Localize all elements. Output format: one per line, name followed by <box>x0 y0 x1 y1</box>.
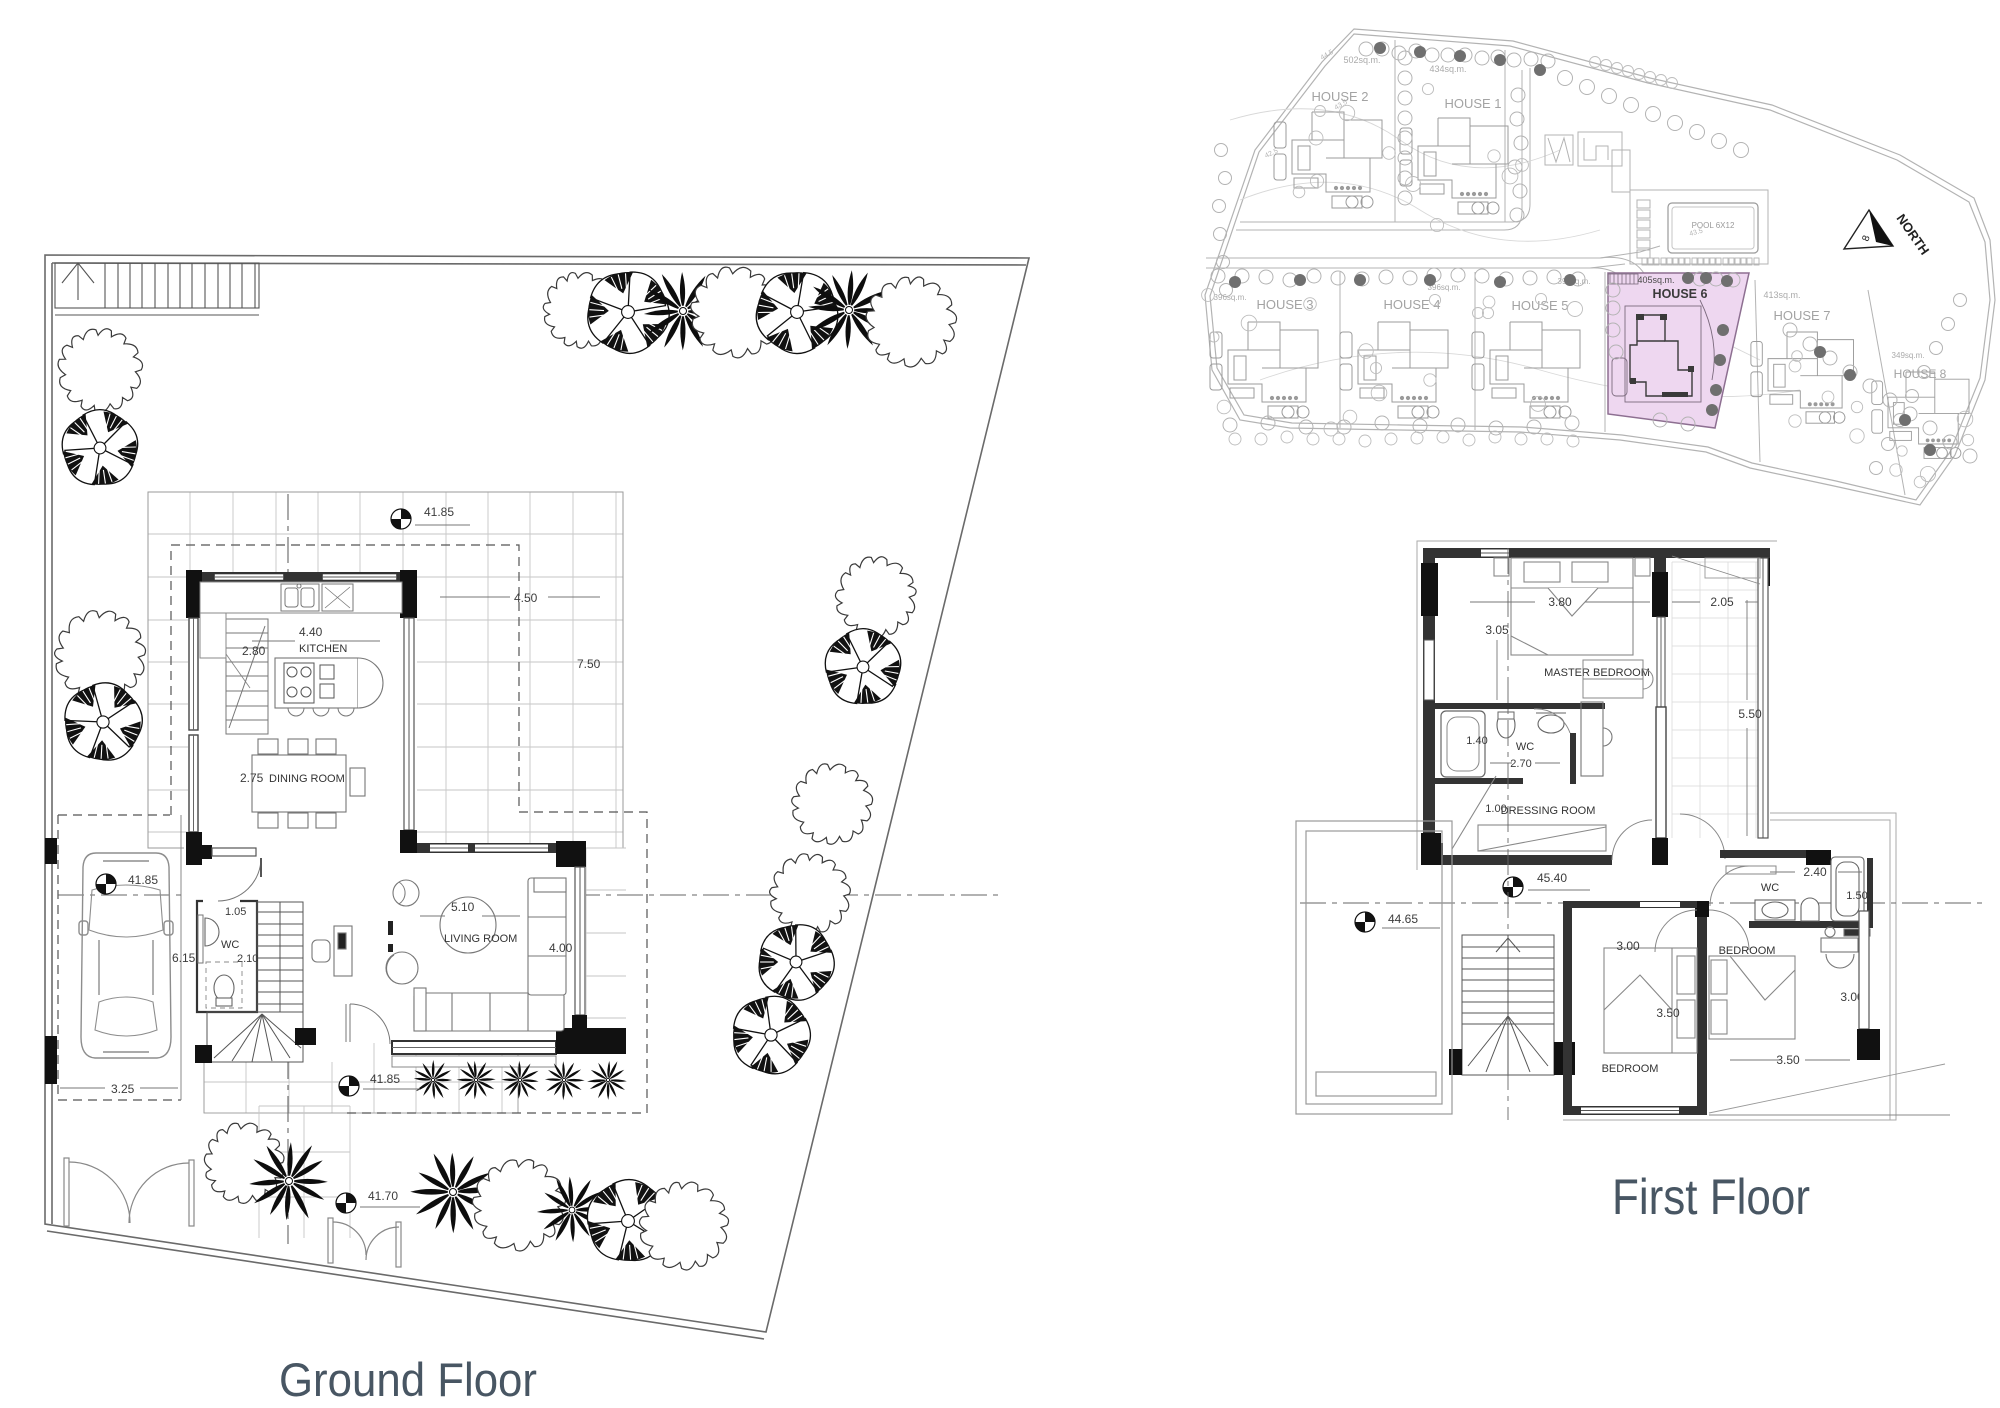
svg-text:1.00: 1.00 <box>1485 803 1506 815</box>
svg-text:3.25: 3.25 <box>111 1082 135 1096</box>
svg-text:44.65: 44.65 <box>1388 912 1418 926</box>
svg-text:45.40: 45.40 <box>1537 871 1567 885</box>
svg-text:349sq.m.: 349sq.m. <box>1892 351 1925 360</box>
svg-text:BEDROOM: BEDROOM <box>1719 945 1776 957</box>
svg-text:HOUSE 5: HOUSE 5 <box>1511 298 1568 313</box>
svg-text:2.70: 2.70 <box>1510 758 1531 770</box>
svg-text:502sq.m.: 502sq.m. <box>1343 55 1380 65</box>
svg-text:2.10: 2.10 <box>237 953 258 965</box>
svg-text:BEDROOM: BEDROOM <box>1602 1063 1659 1075</box>
svg-text:HOUSE 2: HOUSE 2 <box>1311 89 1368 104</box>
svg-text:POOL 6X12: POOL 6X12 <box>1692 221 1735 230</box>
svg-text:5.10: 5.10 <box>451 900 475 914</box>
svg-text:Ground Floor: Ground Floor <box>279 1353 537 1406</box>
svg-text:1.05: 1.05 <box>225 906 246 918</box>
svg-text:41.85: 41.85 <box>370 1072 400 1086</box>
svg-text:3.05: 3.05 <box>1485 623 1509 637</box>
svg-text:434sq.m.: 434sq.m. <box>1429 64 1466 74</box>
svg-text:DRESSING ROOM: DRESSING ROOM <box>1501 805 1596 817</box>
svg-text:3.00: 3.00 <box>1616 939 1640 953</box>
svg-text:4.40: 4.40 <box>299 625 323 639</box>
svg-text:396sq.m.: 396sq.m. <box>1214 293 1247 302</box>
svg-text:1.40: 1.40 <box>1466 735 1487 747</box>
svg-text:2.80: 2.80 <box>242 644 266 658</box>
svg-text:7.50: 7.50 <box>577 657 601 671</box>
svg-text:2.05: 2.05 <box>1710 595 1734 609</box>
svg-text:WC: WC <box>1516 741 1534 753</box>
svg-text:HOUSE 3: HOUSE 3 <box>1256 297 1313 312</box>
svg-text:HOUSE 6: HOUSE 6 <box>1653 287 1708 301</box>
svg-text:KITCHEN: KITCHEN <box>299 643 347 655</box>
svg-text:3.80: 3.80 <box>1548 595 1572 609</box>
svg-text:WC: WC <box>1761 882 1779 894</box>
svg-text:WC: WC <box>221 939 239 951</box>
svg-text:HOUSE 7: HOUSE 7 <box>1773 308 1830 323</box>
svg-text:HOUSE 1: HOUSE 1 <box>1444 96 1501 111</box>
svg-text:First Floor: First Floor <box>1612 1169 1810 1225</box>
svg-text:MASTER BEDROOM: MASTER BEDROOM <box>1544 667 1650 679</box>
svg-text:3.50: 3.50 <box>1656 1006 1680 1020</box>
svg-text:413sq.m.: 413sq.m. <box>1763 290 1800 300</box>
svg-text:4.00: 4.00 <box>549 941 573 955</box>
svg-text:41.70: 41.70 <box>368 1189 398 1203</box>
svg-text:2.40: 2.40 <box>1803 865 1827 879</box>
svg-text:HOUSE 8: HOUSE 8 <box>1894 367 1947 381</box>
svg-text:6.15: 6.15 <box>172 951 196 965</box>
svg-text:41.85: 41.85 <box>128 873 158 887</box>
svg-text:5.50: 5.50 <box>1738 707 1762 721</box>
svg-text:405sq.m.: 405sq.m. <box>1637 275 1674 285</box>
svg-text:41.85: 41.85 <box>424 505 454 519</box>
svg-text:4.50: 4.50 <box>514 591 538 605</box>
svg-text:1.50: 1.50 <box>1846 890 1867 902</box>
svg-text:DINING ROOM: DINING ROOM <box>269 773 345 785</box>
svg-text:LIVING ROOM: LIVING ROOM <box>444 933 517 945</box>
svg-text:2.75: 2.75 <box>240 771 264 785</box>
